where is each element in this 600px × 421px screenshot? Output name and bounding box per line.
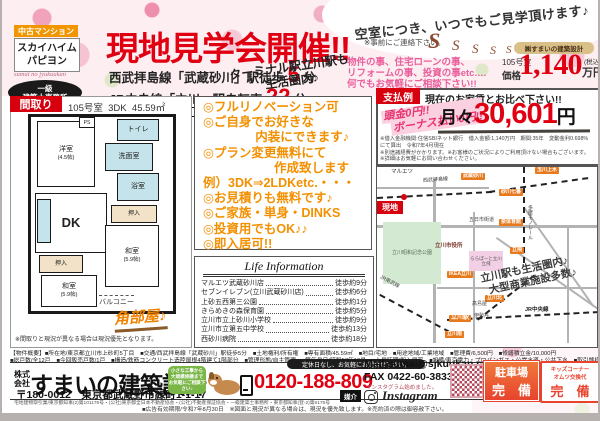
parking-badge: 駐車場 完 備 [484,361,539,401]
used-mansion-badge: 中古マンション [14,25,78,37]
madori-area: 45.59㎡ [132,103,165,114]
company-prefix-line1: 株式 [14,370,30,379]
western-room-label: 洋室 [59,146,73,154]
qr-code [450,364,484,398]
fax-text: FAX 0422-60-3833 [364,371,453,383]
lalaport-label: ららぽーと立川立飛 [469,256,503,267]
price-value: 1,140 [519,48,582,82]
site-marker-label: 現地 [382,202,398,213]
site-dot-marker [401,194,407,200]
station-tachihi: 立飛 [510,247,524,254]
western-room-size: (4.5帖) [58,154,75,162]
floor-plan-japanese-room1: 和室 (5.9帖) [105,225,159,287]
life-item-1-time: 徒歩約9分 [335,279,367,288]
cityhall-label: 立川市役所 [435,243,463,249]
life-info-title: Life Information [203,259,365,277]
mascot-s-1: S [428,28,440,54]
instagram-icon [364,390,378,404]
washroom-label: 洗面室 [119,153,140,161]
life-item-6: 立川市立第五中学校徒歩約13分 [195,325,373,334]
payment-label: 支払例 [383,89,413,104]
floor-plan: 洋室 (4.5帖) PS トイレ 洗面室 浴室 DK 押入 和室 (5.9帖) … [28,114,176,314]
japanese-room1-label: 和室 [125,248,139,256]
floor-plan-closet-left: 押入 [39,255,83,273]
mascot-s-3: S [472,41,479,57]
life-item-6-time: 徒歩約13分 [331,325,367,334]
floor-plan-closet-right: 押入 [111,205,157,223]
life-info-panel: Life Information マルエツ武蔵砂川店徒歩約9分 セブンイレブン(… [194,256,374,348]
station-musashisunagawa: 武蔵砂川 [461,173,485,180]
station-izumi-taiikukan: 泉体育館 [499,219,523,226]
kids-line1: キッズコーナー [551,365,590,373]
station-tachikawa-minami: 立川南 [445,331,464,338]
life-item-7-name: 西砂川病院 [201,335,236,344]
dotted-leader [259,304,333,305]
mascot-s-2: S [452,38,460,55]
life-item-3-time: 徒歩約1分 [335,298,367,307]
feature-line-9: ◎投資用でもOK♪♪ [203,222,363,237]
instagram-icon-lens [368,394,375,401]
dk-label: DK [62,219,81,227]
dog-ear [209,372,214,379]
monthly-value: 30,601 [474,98,557,130]
feature-line-7: ◎お見積りも無料です♪ [203,191,363,206]
features-panel: ◎フルリノベーション可 ◎ご自身でお好きな 内装にできます♪ ◎プラン変更無料に… [194,96,372,250]
floor-plan-toilet: トイレ [117,119,159,141]
mascot-s-5: S [506,44,512,56]
parking-line2: 完 備 [492,380,531,399]
station-sunagawa-nana: 砂川七番 [499,189,523,196]
speech-bubble: 小さな工事から 大規模修繕まで お気軽にご相談下さい♪ [168,366,206,394]
dotted-leader [266,332,329,333]
feature-line-1: ◎フルリノベーション可 [203,100,363,115]
dotted-leader [266,313,333,314]
bath-label: 浴室 [131,183,145,191]
madori-note: ※間取りと現況が異なる場合は現況優先となります。 [15,334,157,343]
floor-plan-japanese-room2: 和室 (5.9帖) [41,275,97,307]
itsukaichi-road-label: 五日市街道 [469,217,494,223]
floor-plan-bath: 浴室 [117,173,159,201]
kids-corner-badge: キッズコーナー オムツ交換代 完 備 [540,361,598,403]
life-item-4-name: きらめきの森保育園 [201,307,264,316]
floor-plan-washroom: 洗面室 [105,143,153,171]
consult-message: 物件の事、住宅ローンの事、 リフォームの事、投資の事etc.… 何でもお気軽にご… [347,57,487,90]
chuo-line-label: JR中央線 [525,307,549,313]
isetan-label: 伊勢丹 [474,313,489,319]
showa-park-label: 立川昭和記念公園 [392,250,432,256]
dog-muzzle [210,380,217,385]
logo-script-text: sumai no jyukuukan [14,71,66,78]
flyer-sheet: 中古マンション スカイハイム パピヨン sumai no jyukuukan 一… [2,0,598,413]
phone-icon-detail [243,389,248,391]
monthly-unit: 円 [557,107,576,128]
feature-line-8: ◎ご家族・単身・DINKS [203,206,363,221]
kids-line3: 完 備 [550,381,589,400]
feature-line-6: 例）3DK⇒2LDKetc.・・・ [203,176,363,191]
life-item-4-time: 徒歩約5分 [335,307,367,316]
monthly-payment: 月々30,601円 [440,98,576,131]
phone-icon [240,375,253,396]
toilet-label: トイレ [128,126,149,134]
monthly-prefix: 月々 [440,108,474,127]
life-item-7: 西砂川病院徒歩約18分 [195,335,373,344]
map-panel: 立川昭和記念公園 ららぽーと立川立飛 西武拝島線 多摩モノレール JR中央線 J… [376,166,598,348]
monorail-label: 多摩モノレール [527,205,533,240]
payment-note-1: ※借入金融機関:住信SBIネット銀行 借入金額:1,140万円 期間:35年 変… [380,136,592,150]
closet-left-label: 押入 [55,260,67,268]
takashimaya-label: 高島屋 [472,301,487,307]
floor-plan-western-room: 洋室 (4.5帖) [37,121,95,187]
japanese-room2-size: (5.9帖) [61,291,78,299]
life-item-1-name: マルエツ武蔵砂川店 [201,279,264,288]
japanese-room1-size: (5.9帖) [124,256,141,264]
validity-note: ■広告有効期限/令和7年8月30日 ※図面と現況が異なる場合は、現況を優先致しま… [142,404,447,413]
flyer-page: 中古マンション スカイハイム パピヨン sumai no jyukuukan 一… [0,0,600,421]
life-item-3: 上砂五西第三公園徒歩約1分 [195,298,373,307]
feature-line-10: ◎即入居可!! [203,237,363,252]
life-item-2: セブンイレブン(立川武蔵砂川店)徒歩約6分 [195,288,373,297]
life-item-5-time: 徒歩約9分 [335,316,367,325]
balcony-label: バルコニー [99,295,134,307]
dog-mascot-illustration [208,372,242,396]
madori-room-no: 105号室 [68,103,103,114]
used-mansion-badge-label: 中古マンション [18,26,74,37]
life-item-1: マルエツ武蔵砂川店徒歩約9分 [195,279,373,288]
closet-right-label: 押入 [128,210,140,218]
life-item-6-name: 立川市立第五中学校 [201,325,264,334]
feature-line-3: 内装にできます♪ [203,130,363,145]
payment-notes: ※借入金融機関:住信SBIネット銀行 借入金額:1,140万円 期間:35年 変… [380,136,592,163]
site-marker-box: 現地 [377,201,403,214]
life-item-5-name: 立川市立上砂川小学校 [201,316,271,325]
mascot-s-4: S [490,43,496,58]
corner-room-callout: 角部屋♪ [113,304,167,333]
ikea-label: IKEA立川 [447,271,473,278]
dotted-leader [273,322,333,323]
japanese-room2-label: 和室 [62,283,76,291]
life-item-2-time: 徒歩約6分 [335,288,367,297]
consult-line1: 物件の事、住宅ローンの事、 [347,57,487,68]
life-item-5: 立川市立上砂川小学校徒歩約9分 [195,316,373,325]
feature-line-4: ◎プラン変更無料にて [203,146,363,161]
payment-note-3: ※詳細はお気軽にお問い合わせください。 [380,156,592,163]
dotted-leader [238,341,329,342]
life-item-7-time: 徒歩約18分 [331,335,367,344]
maruetsu-label: マルエツ [391,169,413,175]
building-name-box: スカイハイム パピヨン [14,38,80,72]
station-tamagawajosui: 玉川上水 [535,167,559,174]
life-item-4: きらめきの森保育園徒歩約5分 [195,307,373,316]
madori-label-box: 間取り [10,96,62,112]
floor-plan-ps: PS [79,117,95,128]
map-road [473,212,475,343]
dog-eye [216,377,218,379]
dotted-leader [306,295,333,296]
bubble-line3: お気軽にご相談下さい♪ [168,380,206,392]
map-road [567,227,569,343]
station-tachikawa: 立川駅 [449,315,471,322]
dotted-leader [266,285,333,286]
instagram-icon-dot [374,392,376,394]
baikai-label: 媒介 [344,394,357,401]
instagram-script-text: Instagram [382,388,438,404]
building-name-line1: スカイハイム [17,42,76,55]
lalaport-area: ららぽーと立川立飛 [469,251,503,271]
life-item-2-name: セブンイレブン(立川武蔵砂川店) [201,288,304,297]
ps-label: PS [84,119,91,127]
baikai-box: 媒介 [340,390,361,402]
kids-line2: オムツ交換代 [554,373,587,381]
feature-line-2: ◎ご自身でお好きな [203,115,363,130]
showa-park-area: 立川昭和記念公園 [383,222,441,284]
parking-line1: 駐車場 [495,364,528,380]
building-name-line2: パピヨン [27,55,67,68]
payment-label-box: 支払例 [376,88,420,104]
architect-office-line1: 一級 [38,84,53,93]
feature-line-5: 作成致します [203,161,363,176]
consult-line2: リフォームの事、投資の事etc.… [347,68,487,79]
kitchen-unit [37,199,51,243]
price-unit: 万円 [582,64,598,80]
madori-header: 105号室 3DK 45.59㎡ [68,100,165,114]
madori-layout: 3DK [108,103,126,114]
company-prefix: 株式 会社 [14,370,30,388]
life-item-3-name: 上砂五西第三公園 [201,298,257,307]
madori-label: 間取り [20,96,53,112]
seibu-line-label: 西武拝島線 [423,176,448,184]
